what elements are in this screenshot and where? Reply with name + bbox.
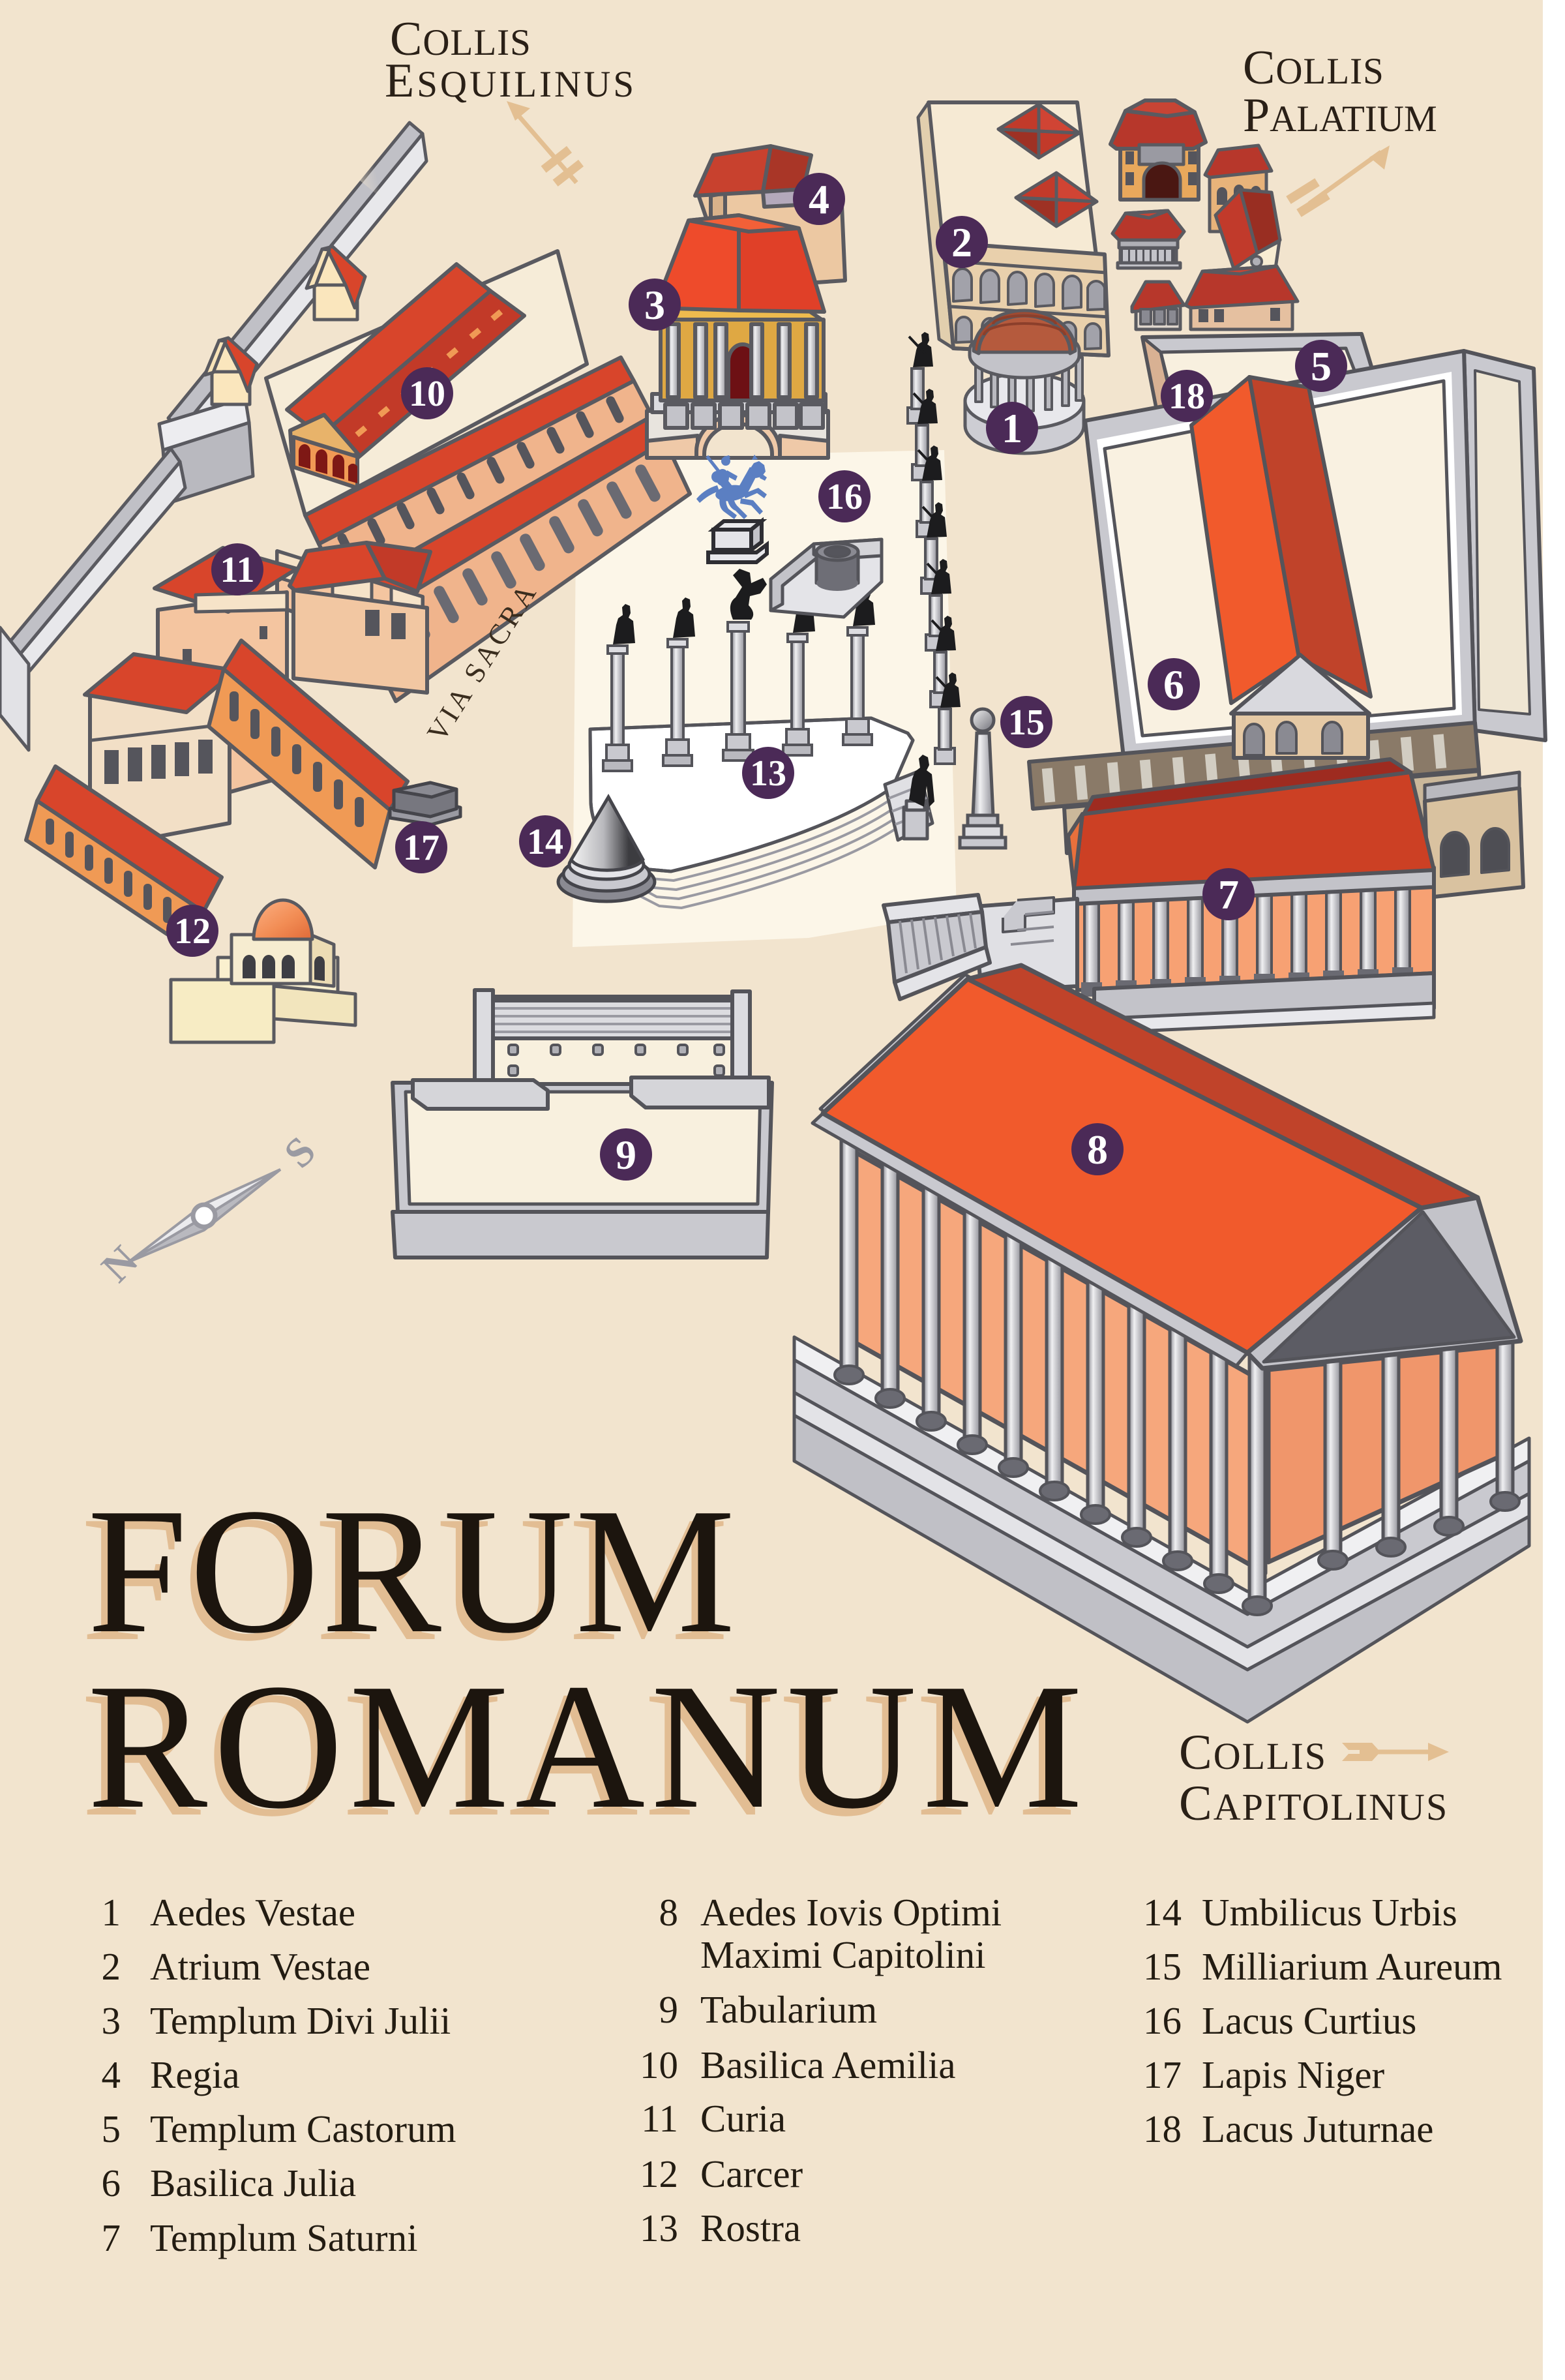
svg-text:ROMANUM: ROMANUM	[87, 1646, 1088, 1846]
svg-text:Tabularium: Tabularium	[700, 1988, 877, 2031]
svg-text:11: 11	[641, 2097, 678, 2140]
svg-text:8: 8	[659, 1891, 679, 1934]
svg-text:Lacus Juturnae: Lacus Juturnae	[1202, 2107, 1434, 2150]
svg-text:1: 1	[102, 1891, 121, 1934]
svg-text:Basilica Aemilia: Basilica Aemilia	[700, 2043, 956, 2086]
svg-text:3: 3	[644, 282, 665, 328]
svg-text:13: 13	[750, 753, 786, 794]
svg-text:Umbilicus Urbis: Umbilicus Urbis	[1202, 1891, 1457, 1934]
svg-text:10: 10	[409, 374, 445, 414]
svg-text:14: 14	[1143, 1891, 1182, 1934]
svg-text:Templum Divi Julii: Templum Divi Julii	[150, 1999, 451, 2042]
svg-text:17: 17	[403, 828, 440, 868]
svg-text:3: 3	[102, 1999, 121, 2042]
svg-text:16: 16	[826, 477, 863, 517]
svg-text:4: 4	[102, 2053, 121, 2096]
svg-text:1: 1	[1002, 405, 1022, 451]
svg-text:7: 7	[102, 2216, 121, 2259]
svg-text:4: 4	[809, 176, 829, 222]
svg-text:Rostra: Rostra	[700, 2207, 801, 2250]
svg-text:10: 10	[640, 2043, 678, 2086]
svg-text:Templum Saturni: Templum Saturni	[150, 2216, 417, 2259]
svg-text:Basilica Julia: Basilica Julia	[150, 2162, 356, 2205]
svg-text:Atrium Vestae: Atrium Vestae	[150, 1945, 370, 1988]
svg-text:2: 2	[951, 219, 972, 265]
svg-text:9: 9	[616, 1132, 636, 1178]
svg-text:Templum Castorum: Templum Castorum	[150, 2107, 456, 2150]
svg-text:9: 9	[659, 1988, 679, 2031]
svg-text:Lapis Niger: Lapis Niger	[1202, 2053, 1385, 2096]
svg-text:15: 15	[1143, 1945, 1182, 1988]
svg-text:15: 15	[1008, 702, 1045, 743]
svg-text:FORUM: FORUM	[87, 1471, 738, 1670]
svg-text:7: 7	[1218, 871, 1239, 918]
svg-text:Aedes Iovis Optimi: Aedes Iovis Optimi	[700, 1891, 1002, 1934]
svg-text:14: 14	[527, 822, 563, 862]
svg-text:Milliarium Aureum: Milliarium Aureum	[1202, 1945, 1502, 1988]
svg-text:Maximi Capitolini: Maximi Capitolini	[700, 1933, 986, 1976]
svg-text:6: 6	[102, 2162, 121, 2205]
svg-text:13: 13	[640, 2207, 678, 2250]
svg-text:8: 8	[1087, 1126, 1108, 1173]
svg-text:5: 5	[1311, 343, 1332, 389]
svg-text:12: 12	[174, 911, 211, 952]
svg-text:11: 11	[220, 550, 255, 590]
svg-text:Regia: Regia	[150, 2053, 240, 2096]
svg-text:Aedes Vestae: Aedes Vestae	[150, 1891, 355, 1934]
svg-text:Carcer: Carcer	[700, 2152, 803, 2195]
svg-text:Curia: Curia	[700, 2097, 786, 2140]
svg-text:18: 18	[1169, 376, 1205, 417]
svg-text:5: 5	[102, 2107, 121, 2150]
svg-text:17: 17	[1143, 2053, 1182, 2096]
svg-text:6: 6	[1163, 661, 1184, 708]
svg-text:2: 2	[102, 1945, 121, 1988]
svg-text:18: 18	[1143, 2107, 1182, 2150]
svg-text:Lacus Curtius: Lacus Curtius	[1202, 1999, 1416, 2042]
svg-text:12: 12	[640, 2152, 678, 2195]
svg-text:16: 16	[1143, 1999, 1182, 2042]
